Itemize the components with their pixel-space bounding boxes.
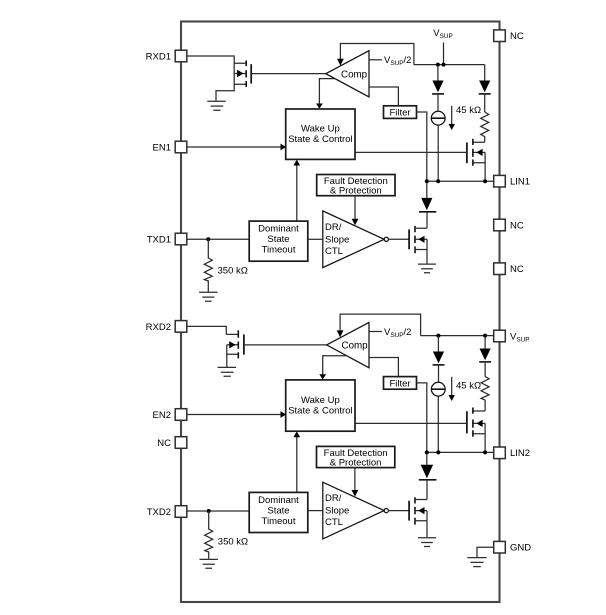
svg-text:RXD2: RXD2 <box>146 322 171 333</box>
svg-text:GND: GND <box>510 543 531 554</box>
svg-text:NC: NC <box>510 31 524 42</box>
svg-text:Comp: Comp <box>342 341 369 352</box>
svg-text:State & Control: State & Control <box>288 405 352 416</box>
svg-text:Dominant: Dominant <box>258 224 299 235</box>
svg-text:EN1: EN1 <box>153 142 171 153</box>
svg-text:Slope: Slope <box>325 234 349 245</box>
svg-text:45 kΩ: 45 kΩ <box>456 381 481 392</box>
svg-text:State & Control: State & Control <box>288 134 352 145</box>
svg-text:CTL: CTL <box>325 517 343 528</box>
svg-text:Timeout: Timeout <box>262 516 296 527</box>
svg-text:NC: NC <box>510 220 524 231</box>
svg-text:350 kΩ: 350 kΩ <box>218 266 248 277</box>
svg-text:TXD1: TXD1 <box>147 234 171 245</box>
svg-text:LIN1: LIN1 <box>510 177 530 188</box>
svg-text:Comp: Comp <box>341 69 368 80</box>
svg-text:State: State <box>267 234 289 245</box>
svg-text:Filter: Filter <box>389 108 410 119</box>
svg-text:EN2: EN2 <box>153 410 171 421</box>
svg-text:TXD2: TXD2 <box>147 507 171 518</box>
svg-text:State: State <box>267 506 289 517</box>
svg-text:& Protection: & Protection <box>330 186 382 197</box>
svg-text:45 kΩ: 45 kΩ <box>456 105 481 116</box>
svg-text:CTL: CTL <box>325 246 343 257</box>
svg-text:Slope: Slope <box>325 506 349 517</box>
svg-text:350 kΩ: 350 kΩ <box>218 537 248 548</box>
svg-text:& Protection: & Protection <box>330 458 382 469</box>
svg-text:DR/: DR/ <box>325 493 342 504</box>
svg-text:Filter: Filter <box>389 378 410 389</box>
svg-text:NC: NC <box>157 438 171 449</box>
svg-text:Wake Up: Wake Up <box>301 123 340 134</box>
svg-text:Dominant: Dominant <box>258 495 299 506</box>
svg-text:RXD1: RXD1 <box>146 51 171 62</box>
svg-text:DR/: DR/ <box>325 222 342 233</box>
svg-text:Wake Up: Wake Up <box>301 395 340 406</box>
svg-text:Timeout: Timeout <box>262 245 296 256</box>
svg-text:LIN2: LIN2 <box>510 448 530 459</box>
svg-text:NC: NC <box>510 264 524 275</box>
